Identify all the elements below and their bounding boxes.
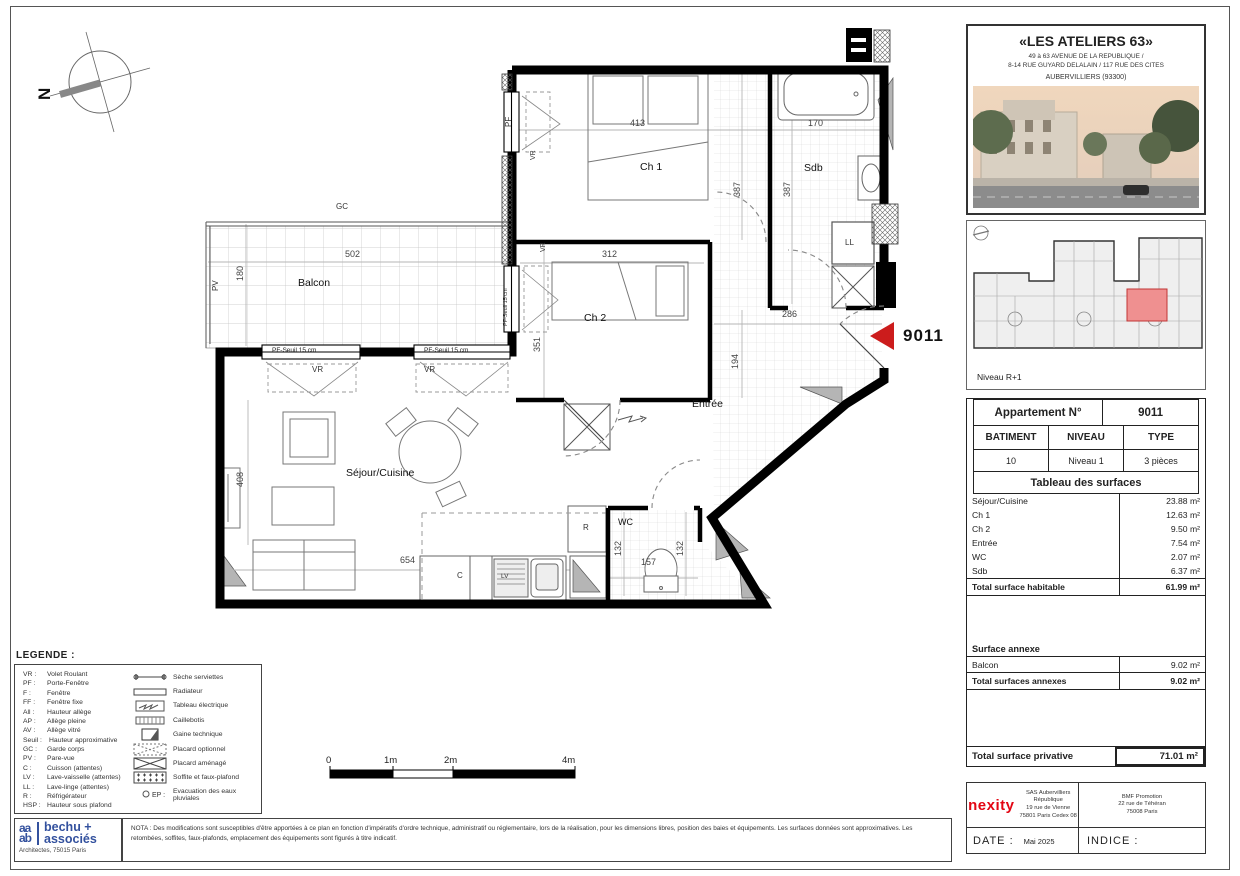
room-label-sejour: Séjour/Cuisine: [346, 468, 414, 479]
nota-box: NOTA : Des modifications sont susceptibl…: [122, 818, 952, 862]
room-label-ch2: Ch 2: [584, 313, 606, 324]
table-value-row: 10 Niveau 1 3 pièces: [974, 450, 1198, 472]
col-header-batiment: BATIMENT: [974, 426, 1048, 449]
apartment-label: Appartement N°: [974, 400, 1102, 425]
closet-entry: [564, 404, 610, 450]
surface-room: Ch 1: [967, 510, 1119, 520]
legend-symbol-label: Placard aménagé: [173, 760, 226, 767]
legend-symbol-label: Soffite et faux-plafond: [173, 774, 239, 781]
apartment-number-row: Appartement N° 9011: [974, 400, 1198, 426]
dim-ch2-height: 351: [533, 337, 542, 352]
room-label-entree: Entrée: [692, 399, 723, 410]
dim-ch1-height: 387: [733, 182, 742, 197]
legend-label: Lave-linge (attentes): [47, 783, 109, 792]
legend-label: Hauteur approximative: [49, 736, 117, 745]
tag-pf-seuil-sejour-1: PF-Seuil 15 cm: [272, 348, 316, 355]
legend-label: Hauteur sous plafond: [47, 801, 112, 810]
legend-abbr: R :: [23, 792, 47, 801]
total-habitable-value: 61.99 m²: [1119, 579, 1205, 595]
kitchen-counter: [420, 506, 606, 600]
svg-text:EP :: EP :: [152, 792, 165, 799]
legend-abbr: AP :: [23, 717, 47, 726]
annexe-room: Balcon: [967, 660, 1119, 670]
tag-pare-vue: PV: [212, 280, 220, 291]
surface-row: Séjour/Cuisine23.88 m²: [967, 494, 1205, 508]
total-privative-label: Total surface privative: [967, 751, 1115, 762]
surface-table-card: Appartement N° 9011 BATIMENT NIVEAU TYPE…: [966, 398, 1206, 767]
legend-label: Cuisson (attentes): [47, 764, 102, 773]
legend-abbr: C :: [23, 764, 47, 773]
surface-area: 12.63 m²: [1119, 508, 1205, 522]
surface-row: Entrée7.54 m²: [967, 536, 1205, 550]
legend-abbr: FF :: [23, 698, 47, 707]
legend-symbols: Sèche serviettes Radiateur Tableau élect…: [132, 670, 259, 811]
col-header-niveau: NIVEAU: [1048, 426, 1123, 449]
value-batiment: 10: [974, 450, 1048, 471]
legend-abbr: All :: [23, 708, 47, 717]
col-header-type: TYPE: [1123, 426, 1198, 449]
towel-dryer-icon: [132, 672, 168, 682]
date-label: DATE :: [973, 835, 1014, 847]
legend-abbr: PV :: [23, 754, 47, 763]
dim-sdb-width: 170: [808, 119, 823, 128]
surface-room: Ch 2: [967, 524, 1119, 534]
grating-icon: [132, 715, 168, 725]
north-compass-icon: [50, 32, 150, 132]
surface-room: Séjour/Cuisine: [967, 496, 1119, 506]
surfaces-table-title: Tableau des surfaces: [974, 472, 1198, 494]
keyplan-level-label: Niveau R+1: [977, 372, 1022, 382]
nexity-logo: nexity: [968, 797, 1014, 814]
scale-4m: 4m: [562, 755, 575, 766]
surface-row: Ch 29.50 m²: [967, 522, 1205, 536]
legend-label: Hauteur allège: [47, 708, 91, 717]
legend-abbr: LL :: [23, 783, 47, 792]
surface-room: WC: [967, 552, 1119, 562]
optional-closet-icon: [132, 743, 168, 756]
room-label-sdb: Sdb: [804, 163, 823, 174]
legend-label: Volet Roulant: [47, 670, 87, 679]
legend-symbol-label: Placard optionnel: [173, 746, 226, 753]
total-annexes-label: Total surfaces annexes: [967, 676, 1119, 686]
legend-abbr: HSP :: [23, 801, 47, 810]
dim-entree-height: 194: [731, 354, 740, 369]
legend-symbol-label: Evacuation des eaux pluviales: [173, 788, 259, 802]
surface-area: 9.50 m²: [1119, 522, 1205, 536]
dim-sejour-width: 654: [400, 556, 415, 565]
legend-box: VR :Volet Roulant PF :Porte-Fenêtre F :F…: [14, 664, 262, 814]
keyplan-card: Niveau R+1: [966, 220, 1206, 390]
bathtub: [778, 68, 874, 120]
legend-abbr: F :: [23, 689, 47, 698]
scale-bar: [330, 766, 575, 778]
legend-symbol-label: Sèche serviettes: [173, 674, 223, 681]
project-photo: [973, 86, 1199, 208]
value-niveau: Niveau 1: [1048, 450, 1123, 471]
tag-vr-ch2: VR: [540, 242, 547, 252]
surface-area: 23.88 m²: [1119, 494, 1205, 508]
north-label: N: [36, 87, 53, 100]
tag-lave-linge: LL: [845, 239, 854, 247]
project-header-card: «LES ATELIERS 63» 49 à 63 AVENUE DE LA R…: [966, 24, 1206, 215]
legend-symbol-label: Caillebotis: [173, 717, 204, 724]
legend-label: Porte-Fenêtre: [47, 679, 89, 688]
bmf-line: 75008 Paris: [1079, 809, 1205, 817]
tag-vr-sejour-2: VR: [424, 366, 435, 374]
dim-wc-right: 132: [676, 541, 685, 556]
legend-abbr: LV :: [23, 773, 47, 782]
apartment-number: 9011: [1102, 400, 1198, 425]
legend-abbr: Seuil :: [23, 736, 49, 745]
scale-0: 0: [326, 755, 331, 766]
tag-lave-vaisselle: LV: [501, 574, 508, 581]
surface-area: 2.07 m²: [1119, 550, 1205, 564]
dim-balcon-width: 502: [345, 250, 360, 259]
tag-vr-sejour-1: VR: [312, 366, 323, 374]
keyplan-compass-icon: [973, 226, 989, 240]
scale-2m: 2m: [444, 755, 457, 766]
annexe-title: Surface annexe: [967, 644, 1205, 654]
sas-line: 19 rue de Vienne: [1019, 805, 1076, 813]
tag-pf-ch1: PF: [505, 117, 513, 127]
total-annexes-row: Total surfaces annexes 9.02 m²: [967, 672, 1205, 689]
dim-sdb-height: 387: [783, 182, 792, 197]
toilet: [644, 549, 678, 592]
project-address-line2: 8-14 RUE GUYARD DELALAIN / 117 RUE DES C…: [968, 62, 1204, 71]
surface-row: WC2.07 m²: [967, 550, 1205, 564]
date-value: Mai 2025: [1024, 837, 1055, 846]
legend-abbr: AV :: [23, 726, 47, 735]
total-privative-row: Total surface privative 71.01 m²: [967, 746, 1205, 766]
fitted-closet-icon: [132, 757, 168, 770]
legend-label: Réfrigérateur: [47, 792, 87, 801]
dim-ch2-width: 312: [602, 250, 617, 259]
room-label-wc: WC: [618, 518, 633, 527]
room-label-ch1: Ch 1: [640, 162, 662, 173]
electrical-panel-icon: [132, 700, 168, 712]
legend-symbol-label: Gaine technique: [173, 731, 223, 738]
project-address-line1: 49 à 63 AVENUE DE LA REPUBLIQUE /: [968, 53, 1204, 62]
dim-wc-width: 157: [641, 558, 656, 567]
sas-line: SAS Aubervilliers: [1019, 790, 1076, 798]
bed-ch1: [588, 70, 708, 200]
total-privative-value: 71.01 m²: [1115, 747, 1205, 766]
soffit-icon: [132, 771, 168, 784]
legend-label: Allège vitré: [47, 726, 81, 735]
total-annexes-value: 9.02 m²: [1119, 673, 1205, 689]
dim-ch1-width: 413: [630, 119, 645, 128]
surface-row: Sdb6.37 m²: [967, 564, 1205, 578]
annexe-area: 9.02 m²: [1119, 657, 1205, 672]
radiator-icon: [132, 687, 168, 697]
surface-room: Entrée: [967, 538, 1119, 548]
architect-name: associés: [44, 834, 97, 846]
rainwater-icon: EP :: [132, 789, 168, 799]
dim-entree-width: 286: [782, 310, 797, 319]
sas-line: République: [1019, 797, 1076, 805]
tag-vr-ch1: VR: [530, 150, 537, 160]
legend-label: Garde corps: [47, 745, 84, 754]
sas-line: 75801 Paris Cedex 08: [1019, 813, 1076, 821]
tag-pf-seuil-sejour-2: PF-Seuil 15 cm: [424, 348, 468, 355]
value-type: 3 pièces: [1123, 450, 1198, 471]
dim-sejour-height: 408: [236, 472, 245, 487]
legend-symbol-label: Radiateur: [173, 688, 202, 695]
bed-ch2: [552, 262, 688, 320]
unit-marker-number: 9011: [903, 327, 944, 344]
legend-label: Fenêtre: [47, 689, 70, 698]
annexe-row: Balcon 9.02 m²: [967, 657, 1205, 672]
surface-row: Ch 112.63 m²: [967, 508, 1205, 522]
project-title: «LES ATELIERS 63»: [972, 33, 1200, 49]
floor-plan-sheet: N Ch 1 Sdb Ch 2 Balcon Séjour/Cuisine En…: [0, 0, 1240, 876]
scale-1m: 1m: [384, 755, 397, 766]
legend-label: Pare-vue: [47, 754, 75, 763]
architect-monogram: ab: [19, 834, 31, 844]
room-label-balcon: Balcon: [298, 278, 330, 289]
title-block: nexity SAS Aubervilliers République 19 r…: [966, 782, 1206, 854]
surface-area: 6.37 m²: [1119, 564, 1205, 578]
surface-room: Sdb: [967, 566, 1119, 576]
legend-abbr: PF :: [23, 679, 47, 688]
legend-title: LEGENDE :: [16, 650, 75, 661]
legend-symbol-label: Tableau électrique: [173, 702, 228, 709]
indice-label: INDICE :: [1087, 835, 1138, 847]
tag-cuisson: C: [457, 572, 463, 580]
electrical-panel-symbol: [618, 416, 646, 422]
total-habitable-row: Total surface habitable 61.99 m²: [967, 578, 1205, 595]
surface-area: 7.54 m²: [1119, 536, 1205, 550]
total-habitable-label: Total surface habitable: [967, 582, 1119, 592]
architect-logo-block: aa ab bechu + associés Architectes, 7501…: [14, 818, 122, 862]
legend-abbreviations: VR :Volet Roulant PF :Porte-Fenêtre F :F…: [23, 670, 132, 811]
bmf-line: BMF Promotion: [1079, 794, 1205, 802]
closet-sdb: [832, 266, 874, 308]
tag-garde-corps: GC: [336, 203, 348, 211]
nota-text: NOTA : Des modifications sont susceptibl…: [131, 825, 913, 842]
tag-refrigerateur: R: [583, 524, 589, 532]
legend-abbr: VR :: [23, 670, 47, 679]
legend-label: Fenêtre fixe: [47, 698, 83, 707]
entry-floor-tiles: [712, 306, 882, 516]
dim-balcon-depth: 180: [236, 266, 245, 281]
legend-abbr: GC :: [23, 745, 47, 754]
table-header-row: BATIMENT NIVEAU TYPE: [974, 426, 1198, 450]
project-city: AUBERVILLIERS (93300): [968, 74, 1204, 81]
legend-label: Allège pleine: [47, 717, 86, 726]
bmf-line: 22 rue de Téhéran: [1079, 801, 1205, 809]
dim-wc-left: 132: [614, 541, 623, 556]
tag-pf-seuil-ch2: PF-Seuil 15 cm: [504, 288, 510, 326]
annexe-title-row: Surface annexe: [967, 642, 1205, 656]
keyplan-drawing: [967, 221, 1205, 367]
architect-subtitle: Architectes, 75015 Paris: [19, 847, 119, 854]
balcony-floor-grid: [206, 226, 508, 348]
legend-label: Lave-vaisselle (attentes): [47, 773, 121, 782]
duct-icon: [132, 728, 168, 741]
